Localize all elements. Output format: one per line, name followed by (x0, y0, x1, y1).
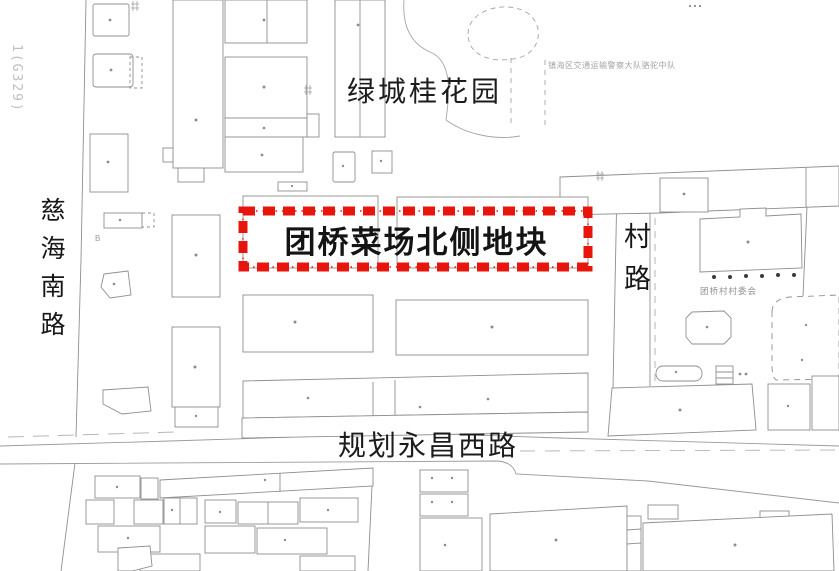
buildings-southwest (61, 463, 373, 571)
map-linework (0, 0, 839, 571)
buildings-northstrip (333, 0, 392, 182)
buildings-east (560, 166, 839, 436)
plot-title: 团桥菜场北侧地块 (245, 212, 588, 266)
buildings-midwest (163, 0, 223, 427)
buildings-southeast (420, 470, 834, 571)
site-plan-map: 1(G329) 慈海南路 村路 绿城桂花园 规划永昌西路 镇海区交通运输警察大队… (0, 0, 839, 571)
committee-boundary-dots (712, 273, 796, 279)
buildings-center (225, 0, 319, 191)
buildings-northwest (90, 4, 154, 414)
